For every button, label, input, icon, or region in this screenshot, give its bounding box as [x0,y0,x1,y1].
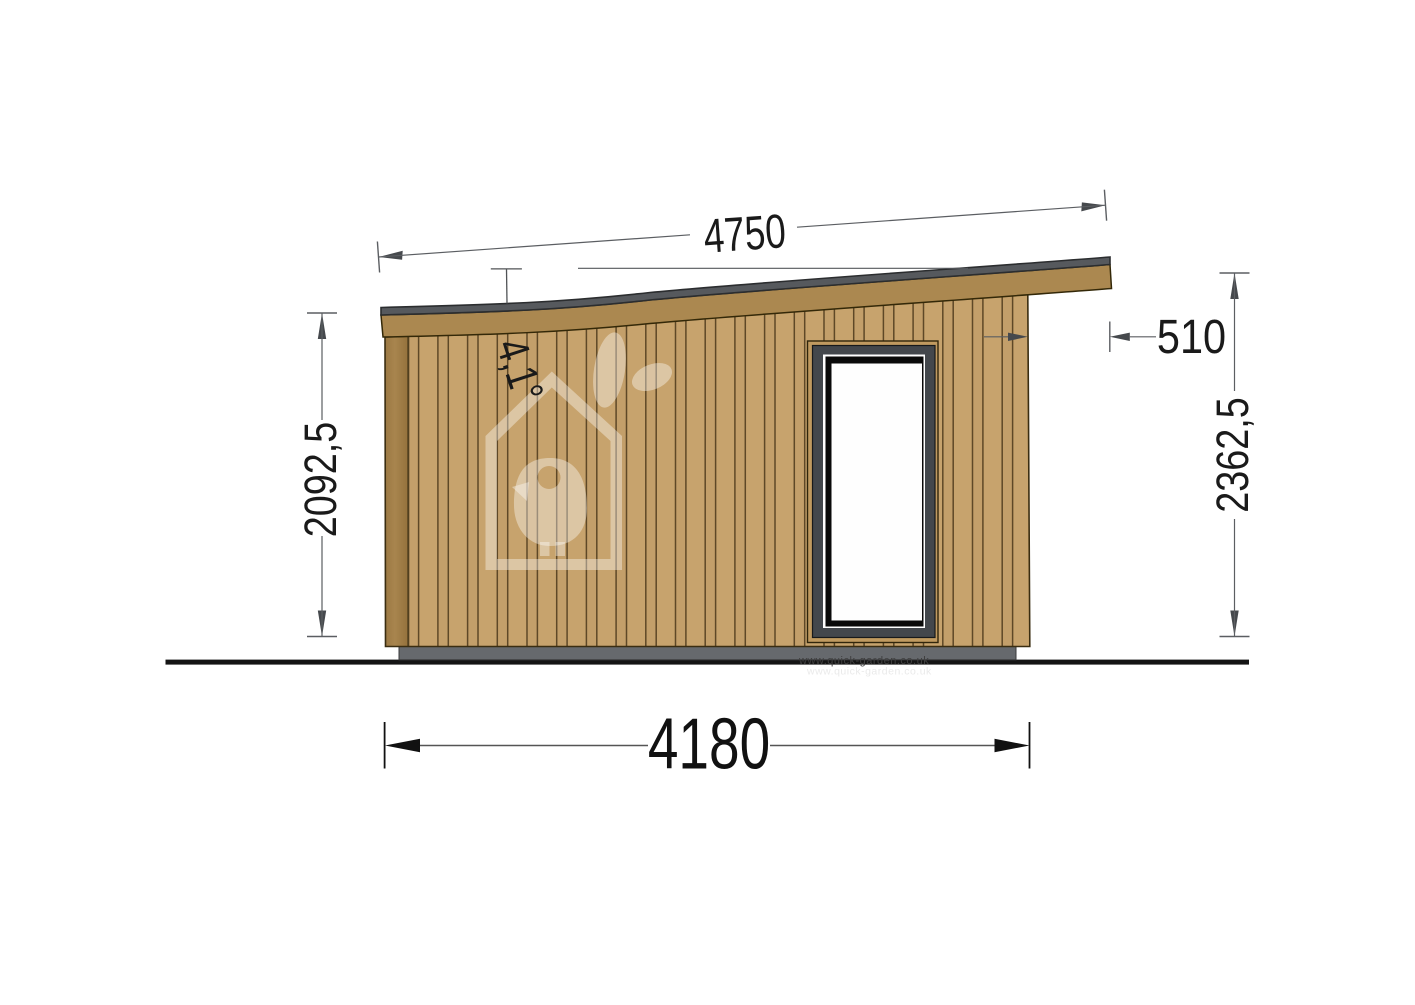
svg-text:4180: 4180 [648,703,770,784]
svg-text:510: 510 [1157,309,1226,364]
svg-text:4750: 4750 [702,205,788,265]
svg-text:www.quick-garden.co.uk: www.quick-garden.co.uk [806,666,932,678]
svg-text:2092,5: 2092,5 [295,422,346,538]
svg-text:2362,5: 2362,5 [1207,397,1258,513]
